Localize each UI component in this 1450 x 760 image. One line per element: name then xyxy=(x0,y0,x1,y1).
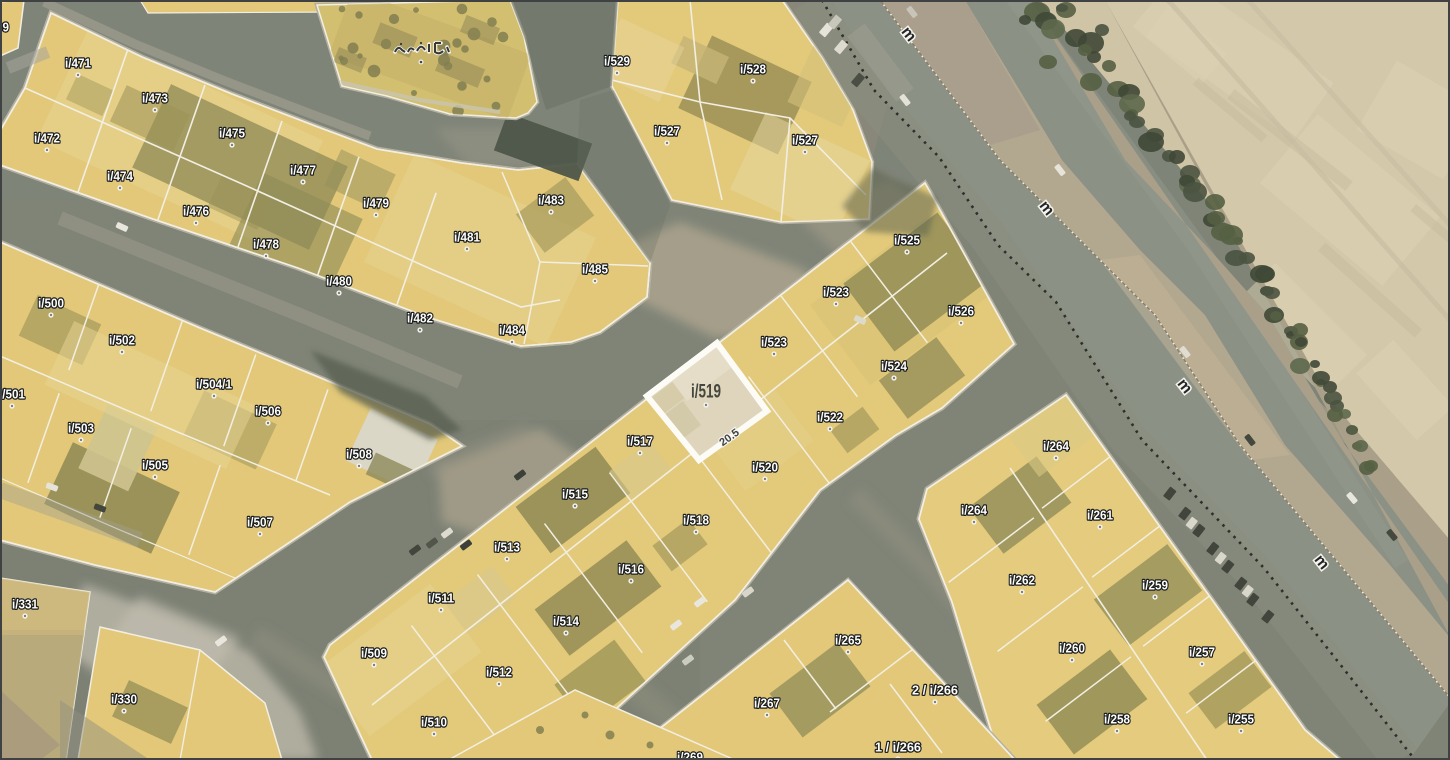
svg-text:i/519: i/519 xyxy=(691,382,721,403)
svg-text:i/258: i/258 xyxy=(1104,712,1130,727)
svg-text:i/265: i/265 xyxy=(835,633,861,648)
svg-text:i/527: i/527 xyxy=(654,124,680,139)
svg-text:i/331: i/331 xyxy=(12,597,38,612)
svg-text:i/508: i/508 xyxy=(346,447,372,462)
svg-text:i/505: i/505 xyxy=(142,458,168,473)
svg-text:i/478: i/478 xyxy=(253,237,279,252)
svg-text:i/503: i/503 xyxy=(68,421,94,436)
svg-text:i/259: i/259 xyxy=(1142,578,1168,593)
svg-text:i/506: i/506 xyxy=(255,404,281,419)
svg-text:i/512: i/512 xyxy=(486,665,512,680)
svg-text:i/474: i/474 xyxy=(107,169,134,184)
svg-text:i/475: i/475 xyxy=(219,126,245,141)
svg-text:i/262: i/262 xyxy=(1009,573,1035,588)
svg-text:i/517: i/517 xyxy=(627,434,653,449)
svg-text:i/480: i/480 xyxy=(326,274,352,289)
svg-text:i/527: i/527 xyxy=(792,133,818,148)
svg-text:i/514: i/514 xyxy=(553,614,580,629)
svg-text:i/509: i/509 xyxy=(361,646,387,661)
svg-text:i/515: i/515 xyxy=(562,487,588,502)
svg-text:i/524: i/524 xyxy=(881,359,908,374)
svg-text:i/260: i/260 xyxy=(1059,641,1085,656)
svg-text:i/483: i/483 xyxy=(538,193,564,208)
svg-text:i/264: i/264 xyxy=(961,503,988,518)
svg-text:i/471: i/471 xyxy=(65,56,91,71)
svg-text:i/516: i/516 xyxy=(618,562,644,577)
svg-text:1 / i/266: 1 / i/266 xyxy=(875,740,921,755)
svg-text:i/513: i/513 xyxy=(494,540,520,555)
svg-text:i/479: i/479 xyxy=(363,196,389,211)
svg-text:i/472: i/472 xyxy=(34,131,60,146)
svg-text:i/330: i/330 xyxy=(111,692,137,707)
svg-text:i/511: i/511 xyxy=(428,591,454,606)
svg-text:2 / i/266: 2 / i/266 xyxy=(912,683,958,698)
svg-text:i/501: i/501 xyxy=(0,387,25,402)
svg-text:i/481: i/481 xyxy=(454,230,480,245)
svg-text:i/476: i/476 xyxy=(183,204,209,219)
svg-text:i/529: i/529 xyxy=(604,54,630,69)
svg-text:i/482: i/482 xyxy=(407,311,433,326)
svg-text:i/477: i/477 xyxy=(290,163,316,178)
svg-text:i/485: i/485 xyxy=(582,262,608,277)
svg-text:i/525: i/525 xyxy=(894,233,920,248)
svg-text:i/523: i/523 xyxy=(823,285,849,300)
svg-text:i/257: i/257 xyxy=(1189,645,1215,660)
svg-text:i/267: i/267 xyxy=(754,696,780,711)
svg-text:i/500: i/500 xyxy=(38,296,64,311)
svg-text:i/507: i/507 xyxy=(247,515,273,530)
svg-text:i/502: i/502 xyxy=(109,333,135,348)
svg-text:i/522: i/522 xyxy=(817,410,843,425)
svg-text:i/255: i/255 xyxy=(1228,712,1254,727)
svg-text:i/520: i/520 xyxy=(752,460,778,475)
svg-text:i/261: i/261 xyxy=(1087,508,1113,523)
svg-text:i/518: i/518 xyxy=(683,513,709,528)
svg-text:i/510: i/510 xyxy=(421,715,447,730)
svg-text:i/264: i/264 xyxy=(1043,439,1070,454)
svg-text:i/504/1: i/504/1 xyxy=(196,377,232,392)
svg-text:i/484: i/484 xyxy=(499,323,526,338)
svg-text:i/528: i/528 xyxy=(740,62,766,77)
svg-text:i/473: i/473 xyxy=(142,91,168,106)
svg-text:i/523: i/523 xyxy=(761,335,787,350)
svg-text:i/526: i/526 xyxy=(948,304,974,319)
